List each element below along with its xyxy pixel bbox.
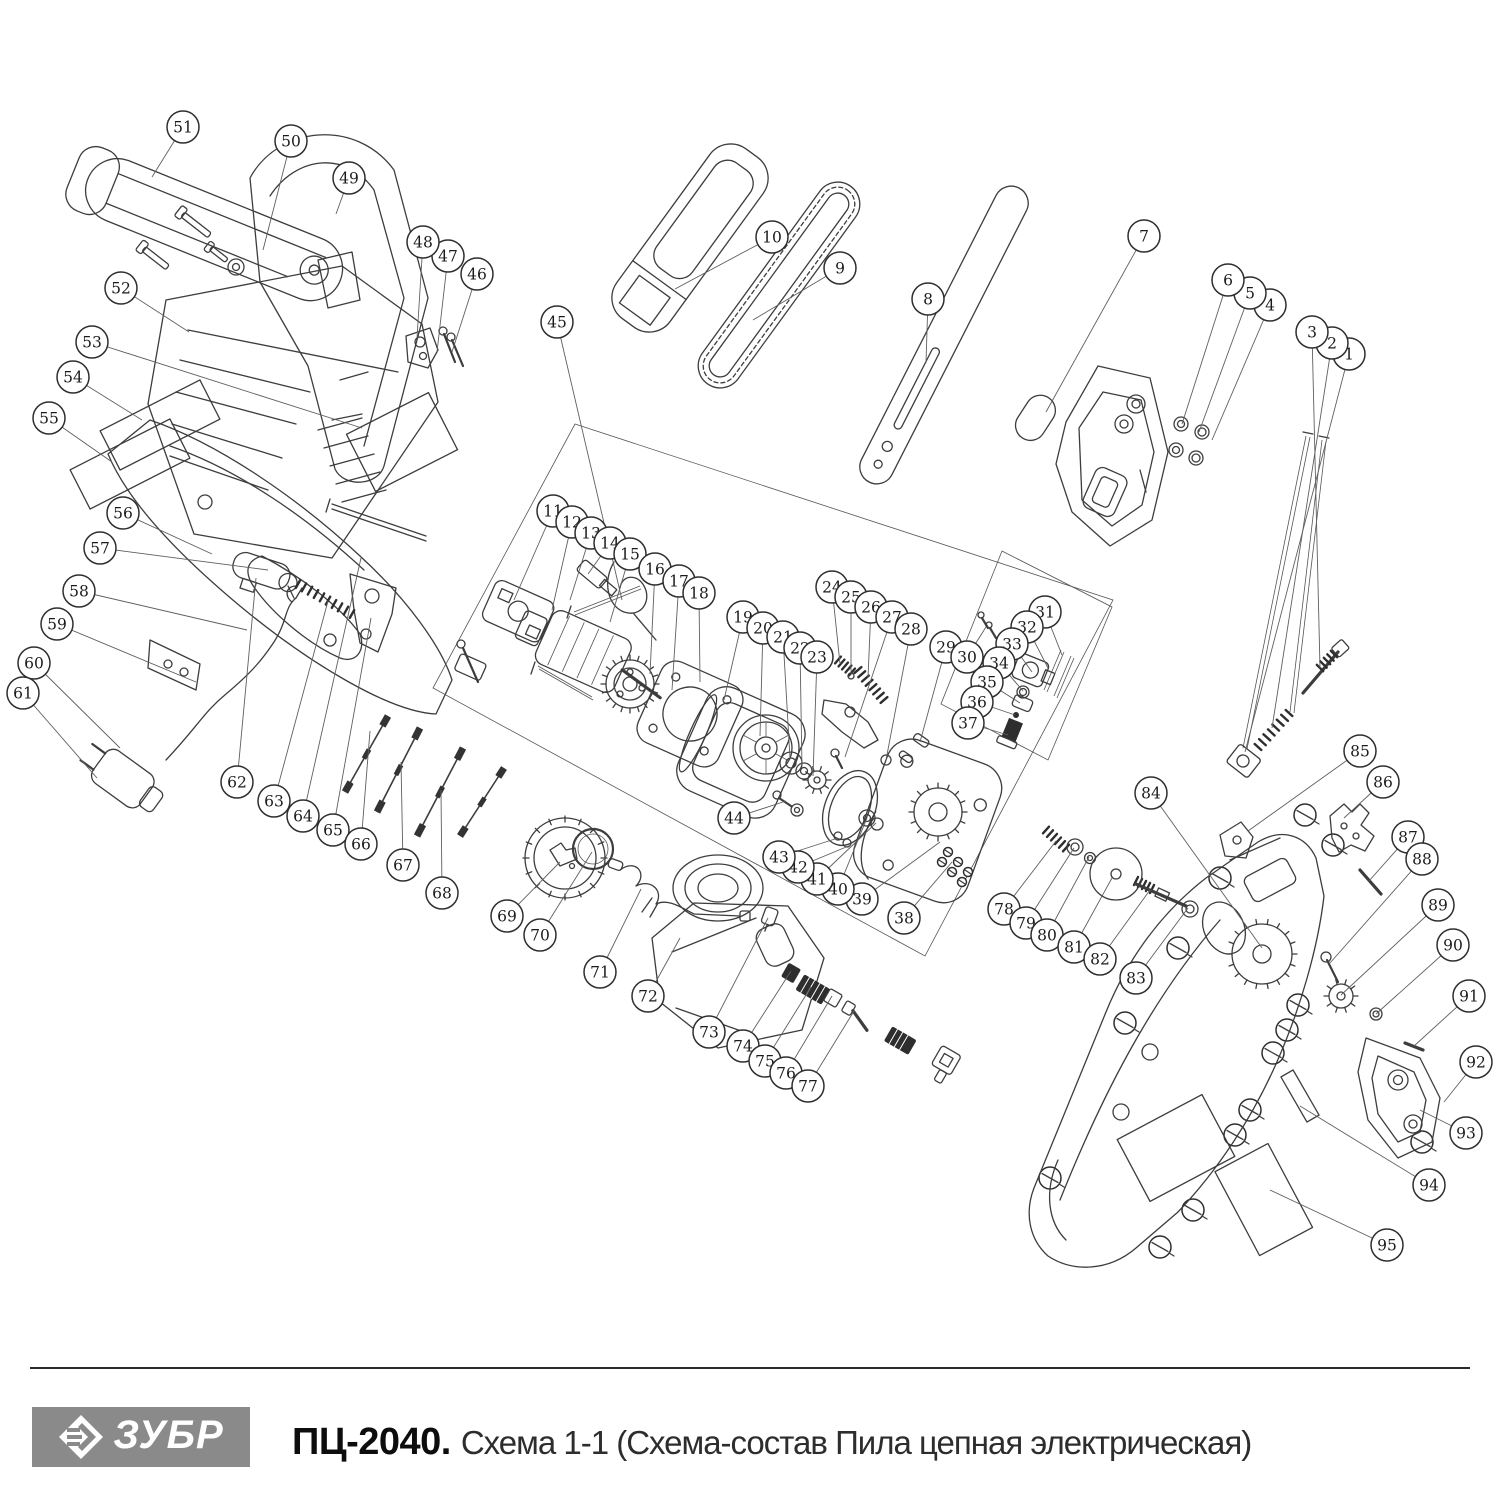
svg-text:95: 95: [1377, 1237, 1397, 1255]
callout-59: 59: [41, 608, 73, 640]
screw-icon: [1182, 1199, 1207, 1221]
svg-text:52: 52: [111, 280, 131, 298]
svg-text:18: 18: [689, 585, 709, 603]
callout-8: 8: [912, 283, 944, 315]
callout-69: 69: [491, 900, 523, 932]
callout-73: 73: [693, 1016, 725, 1048]
part-main-box: [433, 424, 1113, 956]
svg-text:43: 43: [769, 849, 789, 867]
part-brake-lever: [822, 673, 930, 768]
svg-text:62: 62: [227, 774, 247, 792]
callout-62: 62: [221, 766, 253, 798]
screw-icon: [1114, 1012, 1139, 1034]
svg-text:47: 47: [438, 248, 458, 266]
callout-38: 38: [888, 902, 920, 934]
svg-text:63: 63: [264, 793, 284, 811]
callout-65: 65: [317, 814, 349, 846]
part-guide-bar: [854, 180, 1034, 489]
svg-text:53: 53: [82, 334, 102, 352]
svg-text:65: 65: [323, 822, 343, 840]
svg-text:3: 3: [1307, 324, 1317, 342]
callout-94: 94: [1413, 1169, 1445, 1201]
part-tension-rods: [1226, 432, 1350, 778]
svg-text:85: 85: [1350, 743, 1370, 761]
svg-text:89: 89: [1428, 897, 1448, 915]
svg-text:37: 37: [958, 715, 978, 733]
svg-text:81: 81: [1064, 939, 1084, 957]
callout-70: 70: [524, 919, 556, 951]
svg-text:39: 39: [852, 891, 872, 909]
brand-logo-icon: [58, 1414, 104, 1460]
svg-text:74: 74: [733, 1038, 753, 1056]
svg-text:59: 59: [47, 616, 67, 634]
callout-91: 91: [1453, 980, 1485, 1012]
callout-50: 50: [275, 125, 307, 157]
screw-icon: [1239, 1099, 1264, 1121]
svg-text:58: 58: [69, 583, 89, 601]
part-oil-hose: [607, 858, 750, 921]
svg-text:86: 86: [1373, 774, 1393, 792]
callout-3: 3: [1296, 316, 1328, 348]
screw-icon: [1262, 1042, 1287, 1064]
callout-68: 68: [426, 877, 458, 909]
schema-model: ПЦ-2040.: [292, 1421, 451, 1463]
part-handle-fasteners: [135, 205, 244, 275]
callout-89: 89: [1422, 889, 1454, 921]
callout-57: 57: [84, 532, 116, 564]
callout-46: 46: [461, 258, 493, 290]
generated-details: [296, 580, 1436, 1258]
callout-37: 37: [952, 707, 984, 739]
callout-64: 64: [287, 800, 319, 832]
screw-icon: [1149, 1236, 1174, 1258]
svg-text:60: 60: [24, 655, 44, 673]
svg-text:16: 16: [645, 561, 665, 579]
callout-55: 55: [33, 402, 65, 434]
brand-logo: ЗУБР: [32, 1407, 250, 1467]
svg-text:15: 15: [620, 546, 640, 564]
callout-67: 67: [387, 849, 419, 881]
svg-text:55: 55: [39, 410, 59, 428]
svg-text:82: 82: [1090, 951, 1110, 969]
callout-60: 60: [18, 647, 50, 679]
callout-28: 28: [895, 613, 927, 645]
callout-63: 63: [258, 785, 290, 817]
part-chain-scabbard: [602, 134, 779, 343]
screw-icon: [1167, 937, 1192, 959]
svg-text:48: 48: [413, 234, 433, 252]
svg-text:69: 69: [497, 908, 517, 926]
part-info-labels: [70, 380, 457, 509]
svg-text:77: 77: [798, 1078, 818, 1096]
svg-text:73: 73: [699, 1024, 719, 1042]
callout-84: 84: [1135, 777, 1167, 809]
svg-text:2: 2: [1327, 335, 1337, 353]
svg-text:54: 54: [63, 369, 83, 387]
screw-icon: [1276, 1019, 1301, 1041]
part-rear-handle: [60, 141, 353, 312]
callout-52: 52: [105, 272, 137, 304]
callout-92: 92: [1460, 1046, 1492, 1078]
callout-23: 23: [801, 641, 833, 673]
callout-83: 83: [1120, 962, 1152, 994]
brand-logo-text: ЗУБР: [113, 1415, 223, 1459]
callout-51: 51: [167, 111, 199, 143]
svg-text:23: 23: [807, 649, 827, 667]
svg-text:8: 8: [923, 291, 933, 309]
svg-text:28: 28: [901, 621, 921, 639]
callout-61: 61: [7, 677, 39, 709]
part-drive-parts-row: [1067, 839, 1198, 917]
svg-text:49: 49: [339, 170, 359, 188]
callout-10: 10: [756, 221, 788, 253]
svg-text:50: 50: [281, 133, 301, 151]
callout-86: 86: [1367, 766, 1399, 798]
schematic-page: 1234567891011121314151617181920212223242…: [0, 0, 1500, 1500]
callout-54: 54: [57, 361, 89, 393]
callout-6: 6: [1212, 264, 1244, 296]
part-cover-fasteners: [1169, 417, 1209, 465]
callout-56: 56: [107, 497, 139, 529]
svg-text:30: 30: [957, 649, 977, 667]
part-oil-tank: [652, 855, 824, 1048]
callout-85: 85: [1344, 735, 1376, 767]
svg-text:10: 10: [762, 229, 782, 247]
part-motor-cover: [148, 266, 438, 558]
part-left-housing: [108, 420, 452, 714]
svg-text:80: 80: [1037, 927, 1057, 945]
svg-text:56: 56: [113, 505, 133, 523]
svg-text:84: 84: [1141, 785, 1161, 803]
callout-53: 53: [76, 326, 108, 358]
svg-text:92: 92: [1466, 1054, 1486, 1072]
svg-text:88: 88: [1412, 851, 1432, 869]
svg-text:7: 7: [1139, 228, 1149, 246]
callout-82: 82: [1084, 943, 1116, 975]
screw-icon: [1287, 994, 1312, 1016]
svg-text:4: 4: [1265, 297, 1275, 315]
callout-77: 77: [792, 1070, 824, 1102]
svg-text:90: 90: [1443, 937, 1463, 955]
callout-bubbles: 1234567891011121314151617181920212223242…: [7, 111, 1492, 1261]
schema-subtitle: Схема 1-1 (Схема-состав Пила цепная элек…: [461, 1424, 1251, 1461]
callout-72: 72: [632, 980, 664, 1012]
callout-49: 49: [333, 162, 365, 194]
svg-text:57: 57: [90, 540, 110, 558]
callout-44: 44: [718, 802, 750, 834]
callout-95: 95: [1371, 1229, 1403, 1261]
svg-text:67: 67: [393, 857, 413, 875]
svg-text:61: 61: [13, 685, 33, 703]
screw-icon: [1322, 834, 1347, 856]
svg-text:70: 70: [530, 927, 550, 945]
part-brush-holder: [454, 559, 619, 682]
svg-text:83: 83: [1126, 970, 1146, 988]
part-sprocket-cover: [1010, 366, 1168, 546]
svg-text:87: 87: [1398, 829, 1418, 847]
svg-text:46: 46: [467, 266, 487, 284]
exploded-diagram: 1234567891011121314151617181920212223242…: [0, 0, 1500, 1390]
callout-90: 90: [1437, 929, 1469, 961]
screw-icon: [1294, 804, 1319, 826]
svg-text:38: 38: [894, 910, 914, 928]
part-tensioner: [1321, 870, 1423, 1050]
svg-text:71: 71: [590, 964, 610, 982]
part-power-cord: [75, 586, 302, 820]
svg-text:51: 51: [173, 119, 193, 137]
svg-text:66: 66: [351, 836, 371, 854]
part-saw-chain: [689, 173, 868, 396]
part-hand-guard-knob: [1220, 822, 1253, 858]
svg-text:45: 45: [547, 314, 567, 332]
callout-71: 71: [584, 956, 616, 988]
svg-text:68: 68: [432, 885, 452, 903]
part-labels-right: [1215, 1070, 1319, 1256]
svg-text:9: 9: [835, 260, 845, 278]
part-primer-parts: [781, 963, 961, 1086]
callout-58: 58: [63, 575, 95, 607]
callout-9: 9: [824, 252, 856, 284]
svg-text:72: 72: [638, 988, 658, 1006]
svg-text:91: 91: [1459, 988, 1479, 1006]
svg-text:6: 6: [1223, 272, 1233, 290]
part-o-ring: [573, 829, 613, 869]
svg-text:94: 94: [1419, 1177, 1439, 1195]
footer-divider: [30, 1367, 1470, 1369]
callout-7: 7: [1128, 220, 1160, 252]
svg-text:93: 93: [1456, 1125, 1476, 1143]
callout-93: 93: [1450, 1117, 1482, 1149]
svg-text:44: 44: [724, 810, 744, 828]
svg-text:5: 5: [1245, 285, 1255, 303]
screw-icon: [1209, 867, 1234, 889]
callout-66: 66: [345, 828, 377, 860]
part-pinion: [808, 771, 826, 789]
callout-43: 43: [763, 841, 795, 873]
callout-48: 48: [407, 226, 439, 258]
schema-title: ПЦ-2040.Схема 1-1 (Схема-состав Пила цеп…: [292, 1421, 1251, 1464]
callout-18: 18: [683, 577, 715, 609]
part-drive-gear: [606, 660, 654, 708]
part-bearing-plate: [632, 656, 748, 772]
svg-text:64: 64: [293, 808, 313, 826]
callout-88: 88: [1406, 843, 1438, 875]
callout-45: 45: [541, 306, 573, 338]
